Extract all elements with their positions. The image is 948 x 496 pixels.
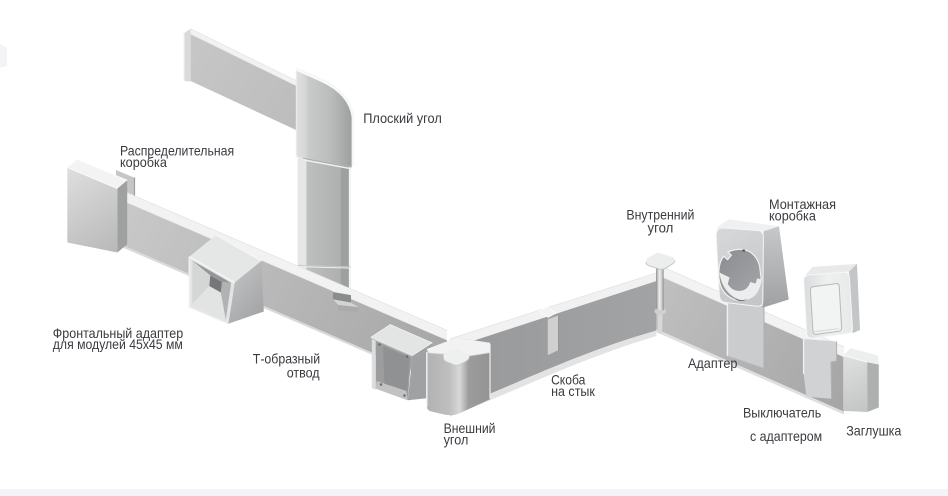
svg-text:Плоский угол: Плоский угол bbox=[363, 110, 442, 126]
svg-text:Выключатель: Выключатель bbox=[743, 404, 821, 420]
svg-text:Адаптер: Адаптер bbox=[688, 355, 738, 371]
svg-text:для модулей 45х45 мм: для модулей 45х45 мм bbox=[53, 336, 183, 352]
svg-text:Заглушка: Заглушка bbox=[846, 423, 901, 439]
svg-text:коробка: коробка bbox=[769, 207, 816, 223]
svg-text:с адаптером: с адаптером bbox=[750, 428, 822, 444]
svg-text:на стык: на стык bbox=[551, 383, 596, 399]
svg-text:отвод: отвод bbox=[287, 364, 320, 380]
svg-text:угол: угол bbox=[648, 220, 674, 236]
svg-text:коробка: коробка bbox=[120, 154, 167, 170]
svg-text:угол: угол bbox=[444, 432, 469, 448]
